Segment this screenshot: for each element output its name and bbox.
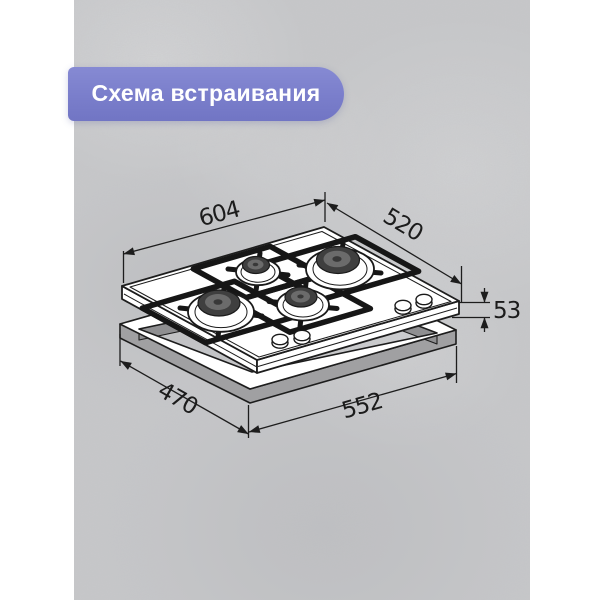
dimension-height: 53 [452, 288, 520, 332]
knob [294, 330, 310, 344]
dim-label-53: 53 [493, 298, 520, 324]
dim-label-552: 552 [339, 388, 385, 424]
dim-label-520: 520 [378, 203, 427, 247]
knob [272, 334, 288, 348]
dim-label-604: 604 [196, 196, 243, 232]
installation-diagram: 604 520 53 470 552 [0, 0, 600, 600]
knob [416, 294, 432, 308]
knob [395, 300, 411, 314]
